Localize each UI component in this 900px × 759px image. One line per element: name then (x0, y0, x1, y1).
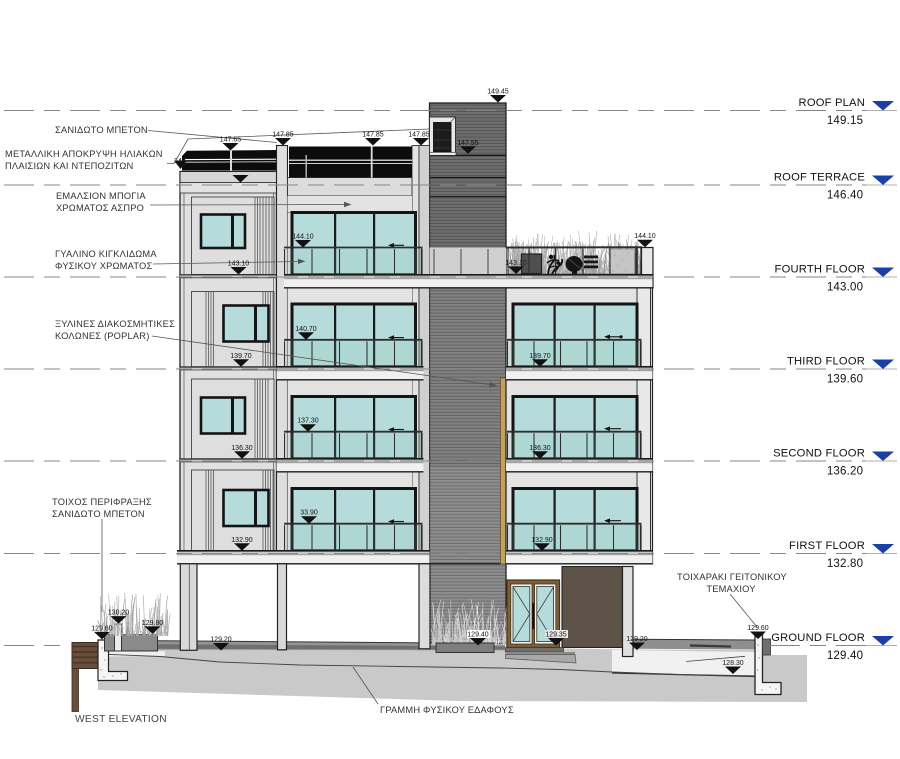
svg-text:GROUND FLOOR: GROUND FLOOR (771, 632, 865, 644)
svg-text:132.80: 132.80 (827, 558, 863, 570)
svg-text:144.10: 144.10 (634, 233, 656, 240)
svg-text:132.90: 132.90 (531, 537, 553, 544)
svg-text:ΤΕΜΑΧΙΟΥ: ΤΕΜΑΧΙΟΥ (706, 584, 755, 594)
svg-text:136.30: 136.30 (231, 445, 253, 452)
svg-text:147.55: 147.55 (457, 140, 479, 147)
svg-text:ROOF PLAN: ROOF PLAN (799, 97, 865, 109)
svg-text:FIRST FLOOR: FIRST FLOOR (789, 540, 865, 552)
svg-text:140.70: 140.70 (295, 326, 317, 333)
svg-text:129.60: 129.60 (91, 625, 113, 632)
svg-text:129.40: 129.40 (467, 632, 489, 639)
svg-text:FOURTH FLOOR: FOURTH FLOOR (775, 264, 865, 276)
svg-text:129.35: 129.35 (545, 632, 567, 639)
svg-text:147.85: 147.85 (408, 132, 430, 139)
svg-text:ΠΛΑΙΣΙΩΝ ΚΑΙ ΝΤΕΠΟΖΙΤΩΝ: ΠΛΑΙΣΙΩΝ ΚΑΙ ΝΤΕΠΟΖΙΤΩΝ (5, 161, 133, 171)
svg-text:130.20: 130.20 (108, 610, 130, 617)
svg-text:ROOF TERRACE: ROOF TERRACE (774, 172, 865, 184)
svg-text:147.85: 147.85 (272, 132, 294, 139)
svg-text:ΕΜΑΛΣΙΟΝ ΜΠΟΓΙΑ: ΕΜΑΛΣΙΟΝ ΜΠΟΓΙΑ (56, 191, 146, 201)
svg-text:143.10: 143.10 (505, 260, 527, 267)
svg-text:ΓΡΑΜΜΗ ΦΥΣΙΚΟΥ ΕΔΑΦΟΥΣ: ΓΡΑΜΜΗ ΦΥΣΙΚΟΥ ΕΔΑΦΟΥΣ (380, 705, 514, 715)
svg-text:THIRD FLOOR: THIRD FLOOR (787, 356, 865, 368)
svg-text:129.20: 129.20 (626, 636, 648, 643)
svg-text:ΓΥΑΛΙΝΟ ΚΙΓΚΛΙΔΩΜΑ: ΓΥΑΛΙΝΟ ΚΙΓΚΛΙΔΩΜΑ (55, 249, 157, 259)
svg-text:WEST ELEVATION: WEST ELEVATION (75, 714, 167, 725)
svg-text:144.10: 144.10 (292, 234, 314, 241)
svg-text:ΤΟΙΧΟΣ ΠΕΡΙΦΡΑΞΗΣ: ΤΟΙΧΟΣ ΠΕΡΙΦΡΑΞΗΣ (52, 497, 152, 507)
svg-text:128.30: 128.30 (722, 660, 744, 667)
svg-text:ΧΡΩΜΑΤΟΣ ΑΣΠΡΟ: ΧΡΩΜΑΤΟΣ ΑΣΠΡΟ (56, 203, 144, 213)
svg-text:139.60: 139.60 (827, 374, 863, 386)
svg-text:147.65: 147.65 (220, 137, 242, 144)
svg-text:ΚΟΛΩΝΕΣ (POPLAR): ΚΟΛΩΝΕΣ (POPLAR) (55, 331, 150, 341)
svg-text:149.45: 149.45 (487, 89, 509, 96)
svg-text:129.40: 129.40 (827, 650, 863, 662)
svg-text:136.30: 136.30 (529, 445, 551, 452)
svg-text:ΤΟΙΧΑΡΑΚΙ ΓΕΙΤΟΝΙΚΟΥ: ΤΟΙΧΑΡΑΚΙ ΓΕΙΤΟΝΙΚΟΥ (677, 572, 787, 582)
svg-text:129.20: 129.20 (210, 637, 232, 644)
svg-text:143.00: 143.00 (827, 282, 863, 294)
svg-text:132.90: 132.90 (231, 537, 253, 544)
svg-text:143.10: 143.10 (228, 261, 250, 268)
svg-text:146.40: 146.40 (827, 190, 863, 202)
svg-text:149.15: 149.15 (827, 115, 863, 127)
svg-text:136.20: 136.20 (827, 466, 863, 478)
svg-text:33.90: 33.90 (300, 510, 318, 517)
svg-text:129.60: 129.60 (747, 625, 769, 632)
svg-text:ΣΑΝΙΔΩΤΟ ΜΠΕΤΟΝ: ΣΑΝΙΔΩΤΟ ΜΠΕΤΟΝ (52, 509, 145, 519)
svg-text:139.70: 139.70 (230, 353, 252, 360)
svg-text:ΜΕΤΑΛΛΙΚΗ ΑΠΟΚΡΥΨΗ ΗΛΙΑΚΩΝ: ΜΕΤΑΛΛΙΚΗ ΑΠΟΚΡΥΨΗ ΗΛΙΑΚΩΝ (5, 149, 163, 159)
svg-text:147.85: 147.85 (362, 132, 384, 139)
svg-text:ΞΥΛΙΝΕΣ ΔΙΑΚΟΣΜΗΤΙΚΕΣ: ΞΥΛΙΝΕΣ ΔΙΑΚΟΣΜΗΤΙΚΕΣ (55, 319, 175, 329)
svg-text:139.70: 139.70 (529, 353, 551, 360)
svg-text:129.80: 129.80 (142, 620, 164, 627)
svg-text:SECOND FLOOR: SECOND FLOOR (773, 448, 865, 460)
svg-text:ΣΑΝΙΔΩΤΟ ΜΠΕΤΟΝ: ΣΑΝΙΔΩΤΟ ΜΠΕΤΟΝ (55, 125, 148, 135)
svg-text:137.30: 137.30 (297, 418, 319, 425)
svg-text:ΦΥΣΙΚΟΥ ΧΡΩΜΑΤΟΣ: ΦΥΣΙΚΟΥ ΧΡΩΜΑΤΟΣ (55, 261, 152, 271)
